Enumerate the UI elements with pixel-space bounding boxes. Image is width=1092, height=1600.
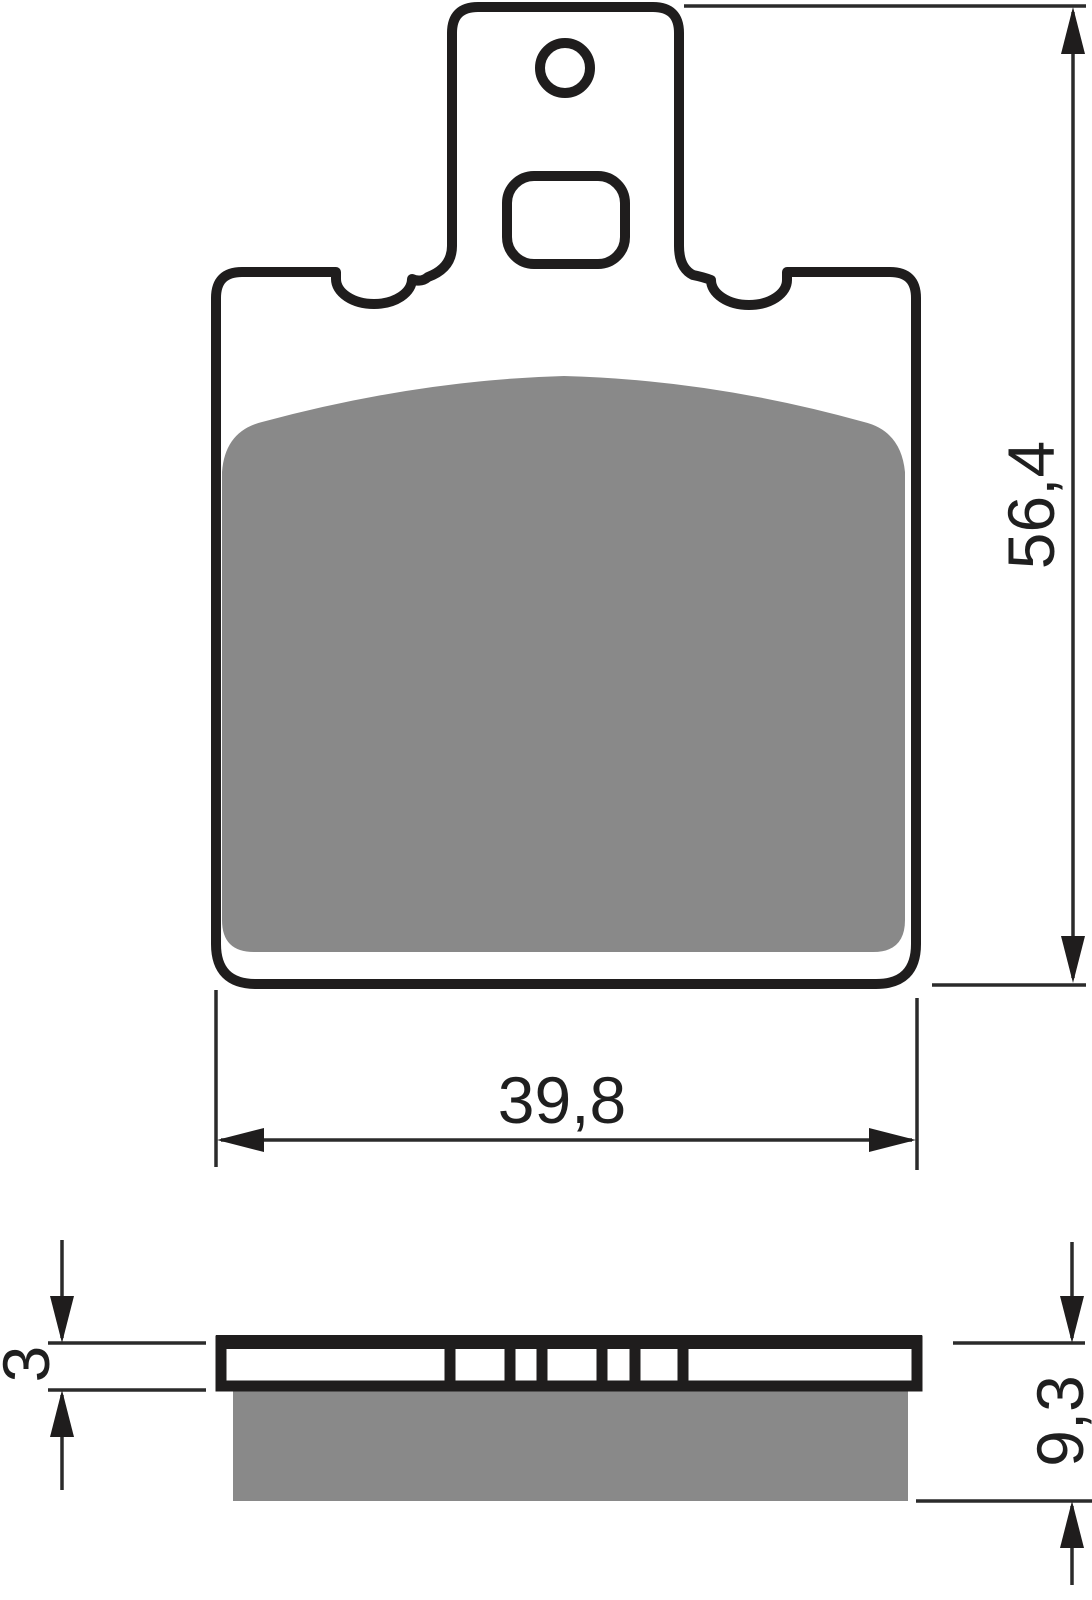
friction-material-front — [222, 376, 905, 952]
height-dimension-label: 56,4 — [994, 441, 1068, 569]
slot-hole — [507, 176, 625, 264]
arrow-right-icon — [869, 1128, 916, 1152]
arrow-up-icon — [1061, 7, 1085, 54]
friction-material-side — [233, 1391, 908, 1501]
width-dimension: 39,8 — [216, 990, 917, 1170]
arrow-left-icon — [217, 1128, 264, 1152]
front-view — [216, 7, 916, 984]
arrow-down-icon — [1061, 936, 1085, 983]
side-view — [216, 1341, 922, 1501]
plate-thickness-label: 3 — [0, 1346, 63, 1383]
arrow-up-icon — [50, 1390, 74, 1437]
arrow-up-icon — [1060, 1501, 1084, 1548]
width-dimension-label: 39,8 — [498, 1063, 626, 1137]
total-thickness-label: 9,3 — [1023, 1375, 1092, 1467]
pin-hole — [540, 43, 590, 93]
plate-thickness-dimension: 3 — [0, 1240, 206, 1490]
page-background: 56,4 39,8 — [0, 0, 1092, 1600]
arrow-down-icon — [1060, 1296, 1084, 1343]
total-thickness-dimension: 9,3 — [916, 1242, 1092, 1585]
arrow-down-icon — [50, 1296, 74, 1343]
brake-pad-technical-drawing: 56,4 39,8 — [0, 0, 1092, 1600]
